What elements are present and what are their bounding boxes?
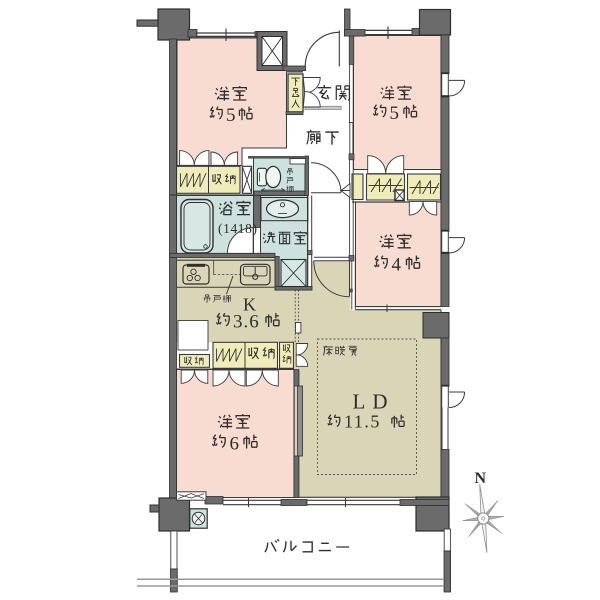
svg-text:N: N	[475, 470, 487, 487]
svg-text:5: 5	[226, 105, 236, 126]
svg-text:5: 5	[390, 103, 400, 124]
svg-text:6: 6	[230, 434, 240, 455]
svg-text:11.5: 11.5	[344, 411, 381, 431]
svg-text:3.6: 3.6	[233, 312, 260, 333]
svg-text:LD: LD	[353, 390, 395, 414]
svg-text:4: 4	[392, 255, 402, 276]
svg-text:(1418): (1418)	[218, 221, 258, 236]
